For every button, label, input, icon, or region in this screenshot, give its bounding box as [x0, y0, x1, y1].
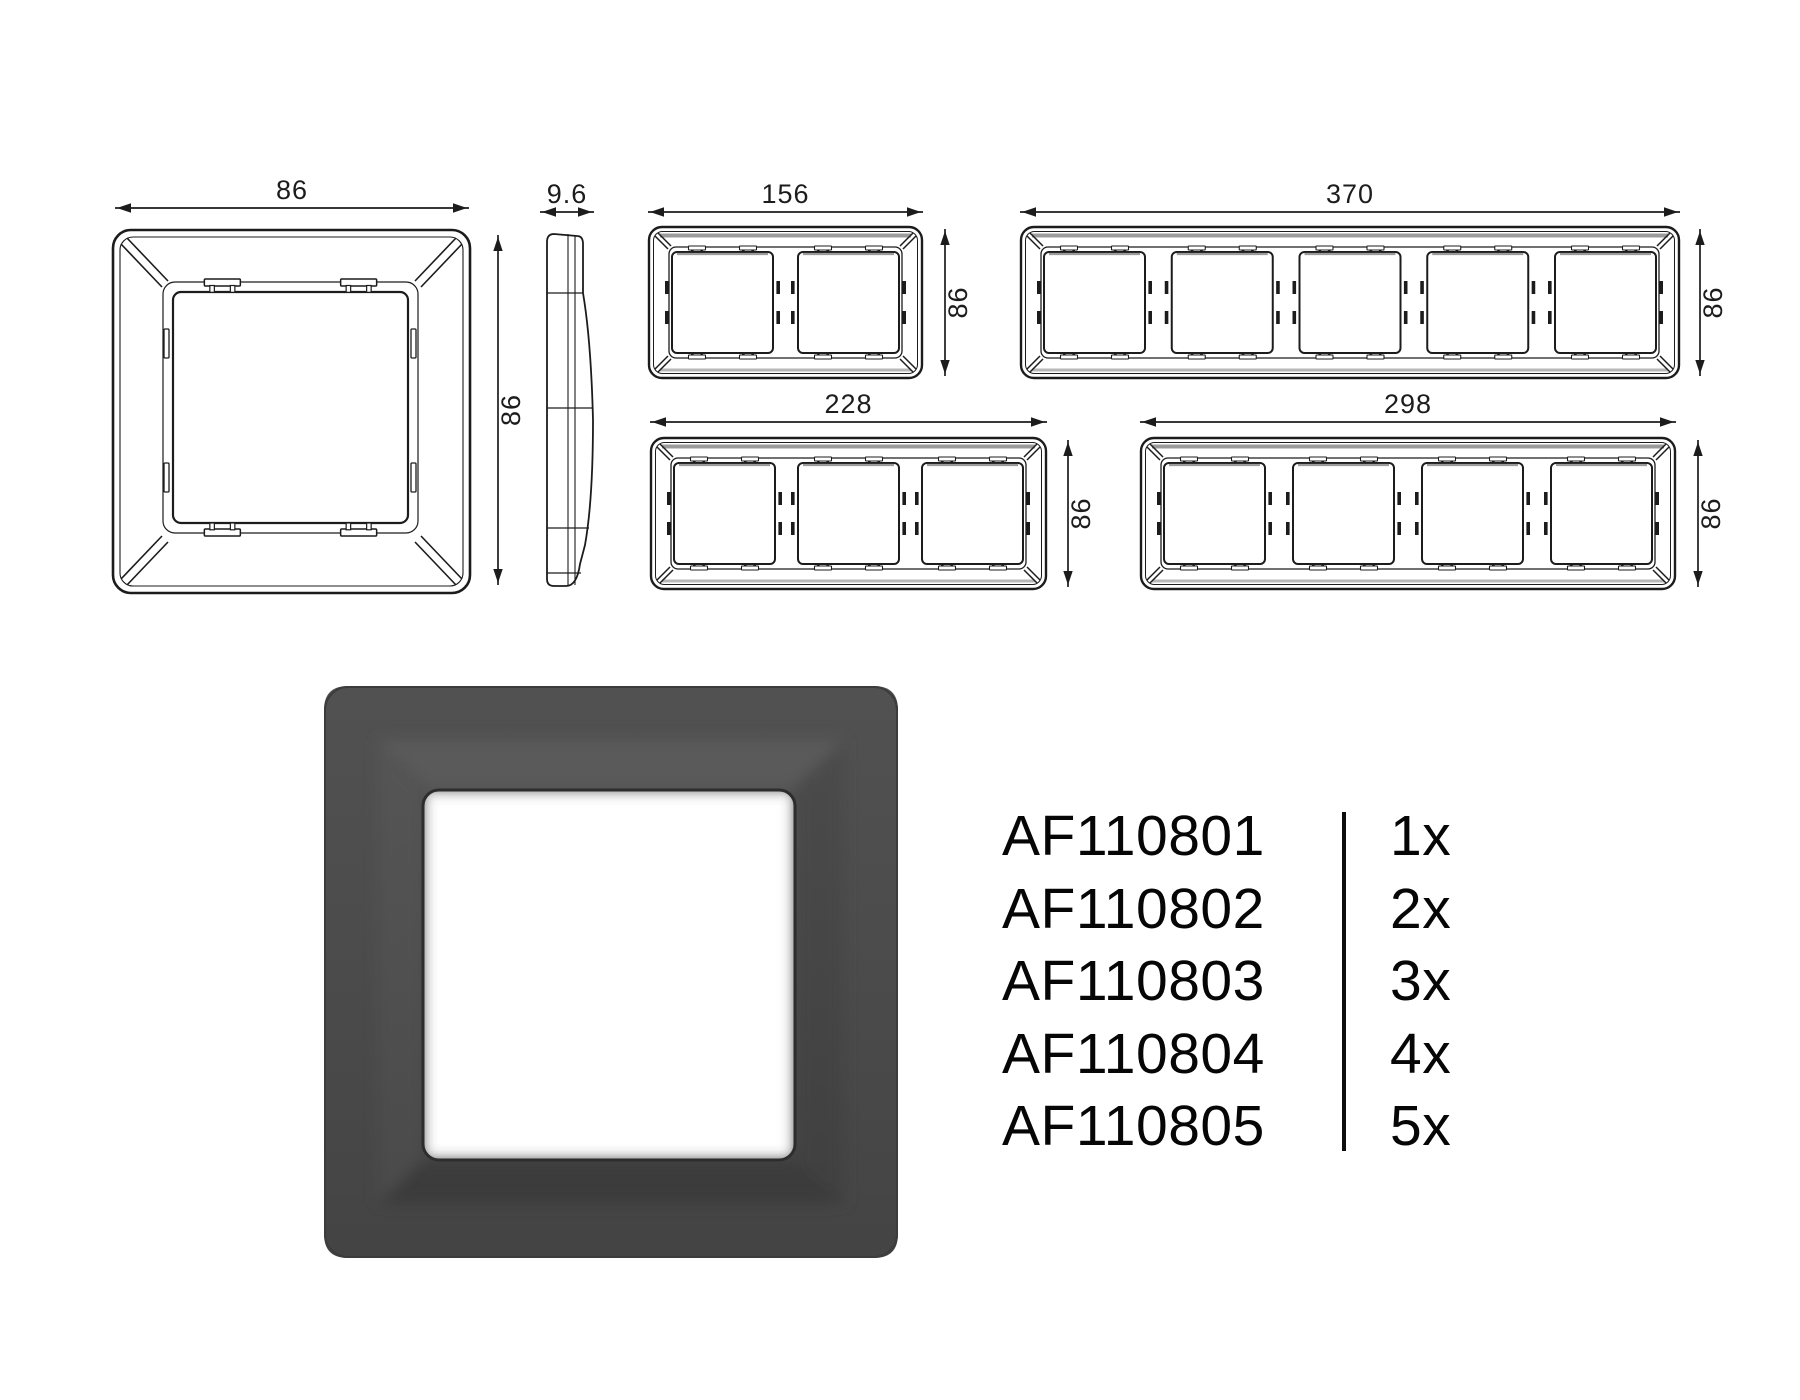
table-divider	[1342, 812, 1346, 1151]
product-quantity: 2x	[1390, 873, 1451, 946]
product-code-column: AF110801AF110802AF110803AF110804AF110805	[1002, 800, 1265, 1163]
product-quantity: 5x	[1390, 1090, 1451, 1163]
dimension-label: 228	[824, 389, 872, 419]
dimension-label: 370	[1326, 179, 1374, 209]
product-code: AF110804	[1002, 1018, 1265, 1091]
product-quantity: 4x	[1390, 1018, 1451, 1091]
product-code: AF110803	[1002, 945, 1265, 1018]
dimension-label: 86	[276, 175, 308, 205]
dimension-label: 9.6	[547, 179, 588, 209]
single-frame-front-view: 8686	[113, 175, 526, 593]
product-sheet: 86869.615686370862288629886 AF110801AF11…	[0, 0, 1800, 1400]
side-profile-view: 9.6	[540, 179, 594, 586]
dimension-label: 86	[943, 286, 973, 318]
frame-4gang-drawing: 29886	[1140, 389, 1726, 589]
product-code: AF110805	[1002, 1090, 1265, 1163]
product-code: AF110801	[1002, 800, 1265, 873]
frame-2gang-drawing: 15686	[648, 179, 973, 378]
product-quantity: 3x	[1390, 945, 1451, 1018]
dimension-label: 86	[1698, 286, 1728, 318]
render-bevel-shading	[378, 740, 844, 1204]
product-quantity: 1x	[1390, 800, 1451, 873]
technical-drawings: 86869.615686370862288629886	[0, 0, 1800, 660]
frame-5gang-drawing: 37086	[1020, 179, 1728, 378]
dimension-label: 298	[1384, 389, 1432, 419]
frame-3d-render	[324, 686, 898, 1258]
dimension-label: 86	[1066, 497, 1096, 529]
frame-3gang-drawing: 22886	[650, 389, 1096, 589]
dimension-label: 156	[761, 179, 809, 209]
dimension-label: 86	[1696, 497, 1726, 529]
dimension-label: 86	[496, 394, 526, 426]
product-code: AF110802	[1002, 873, 1265, 946]
render-opening-edge	[423, 790, 795, 1160]
product-qty-column: 1x2x3x4x5x	[1390, 800, 1451, 1163]
